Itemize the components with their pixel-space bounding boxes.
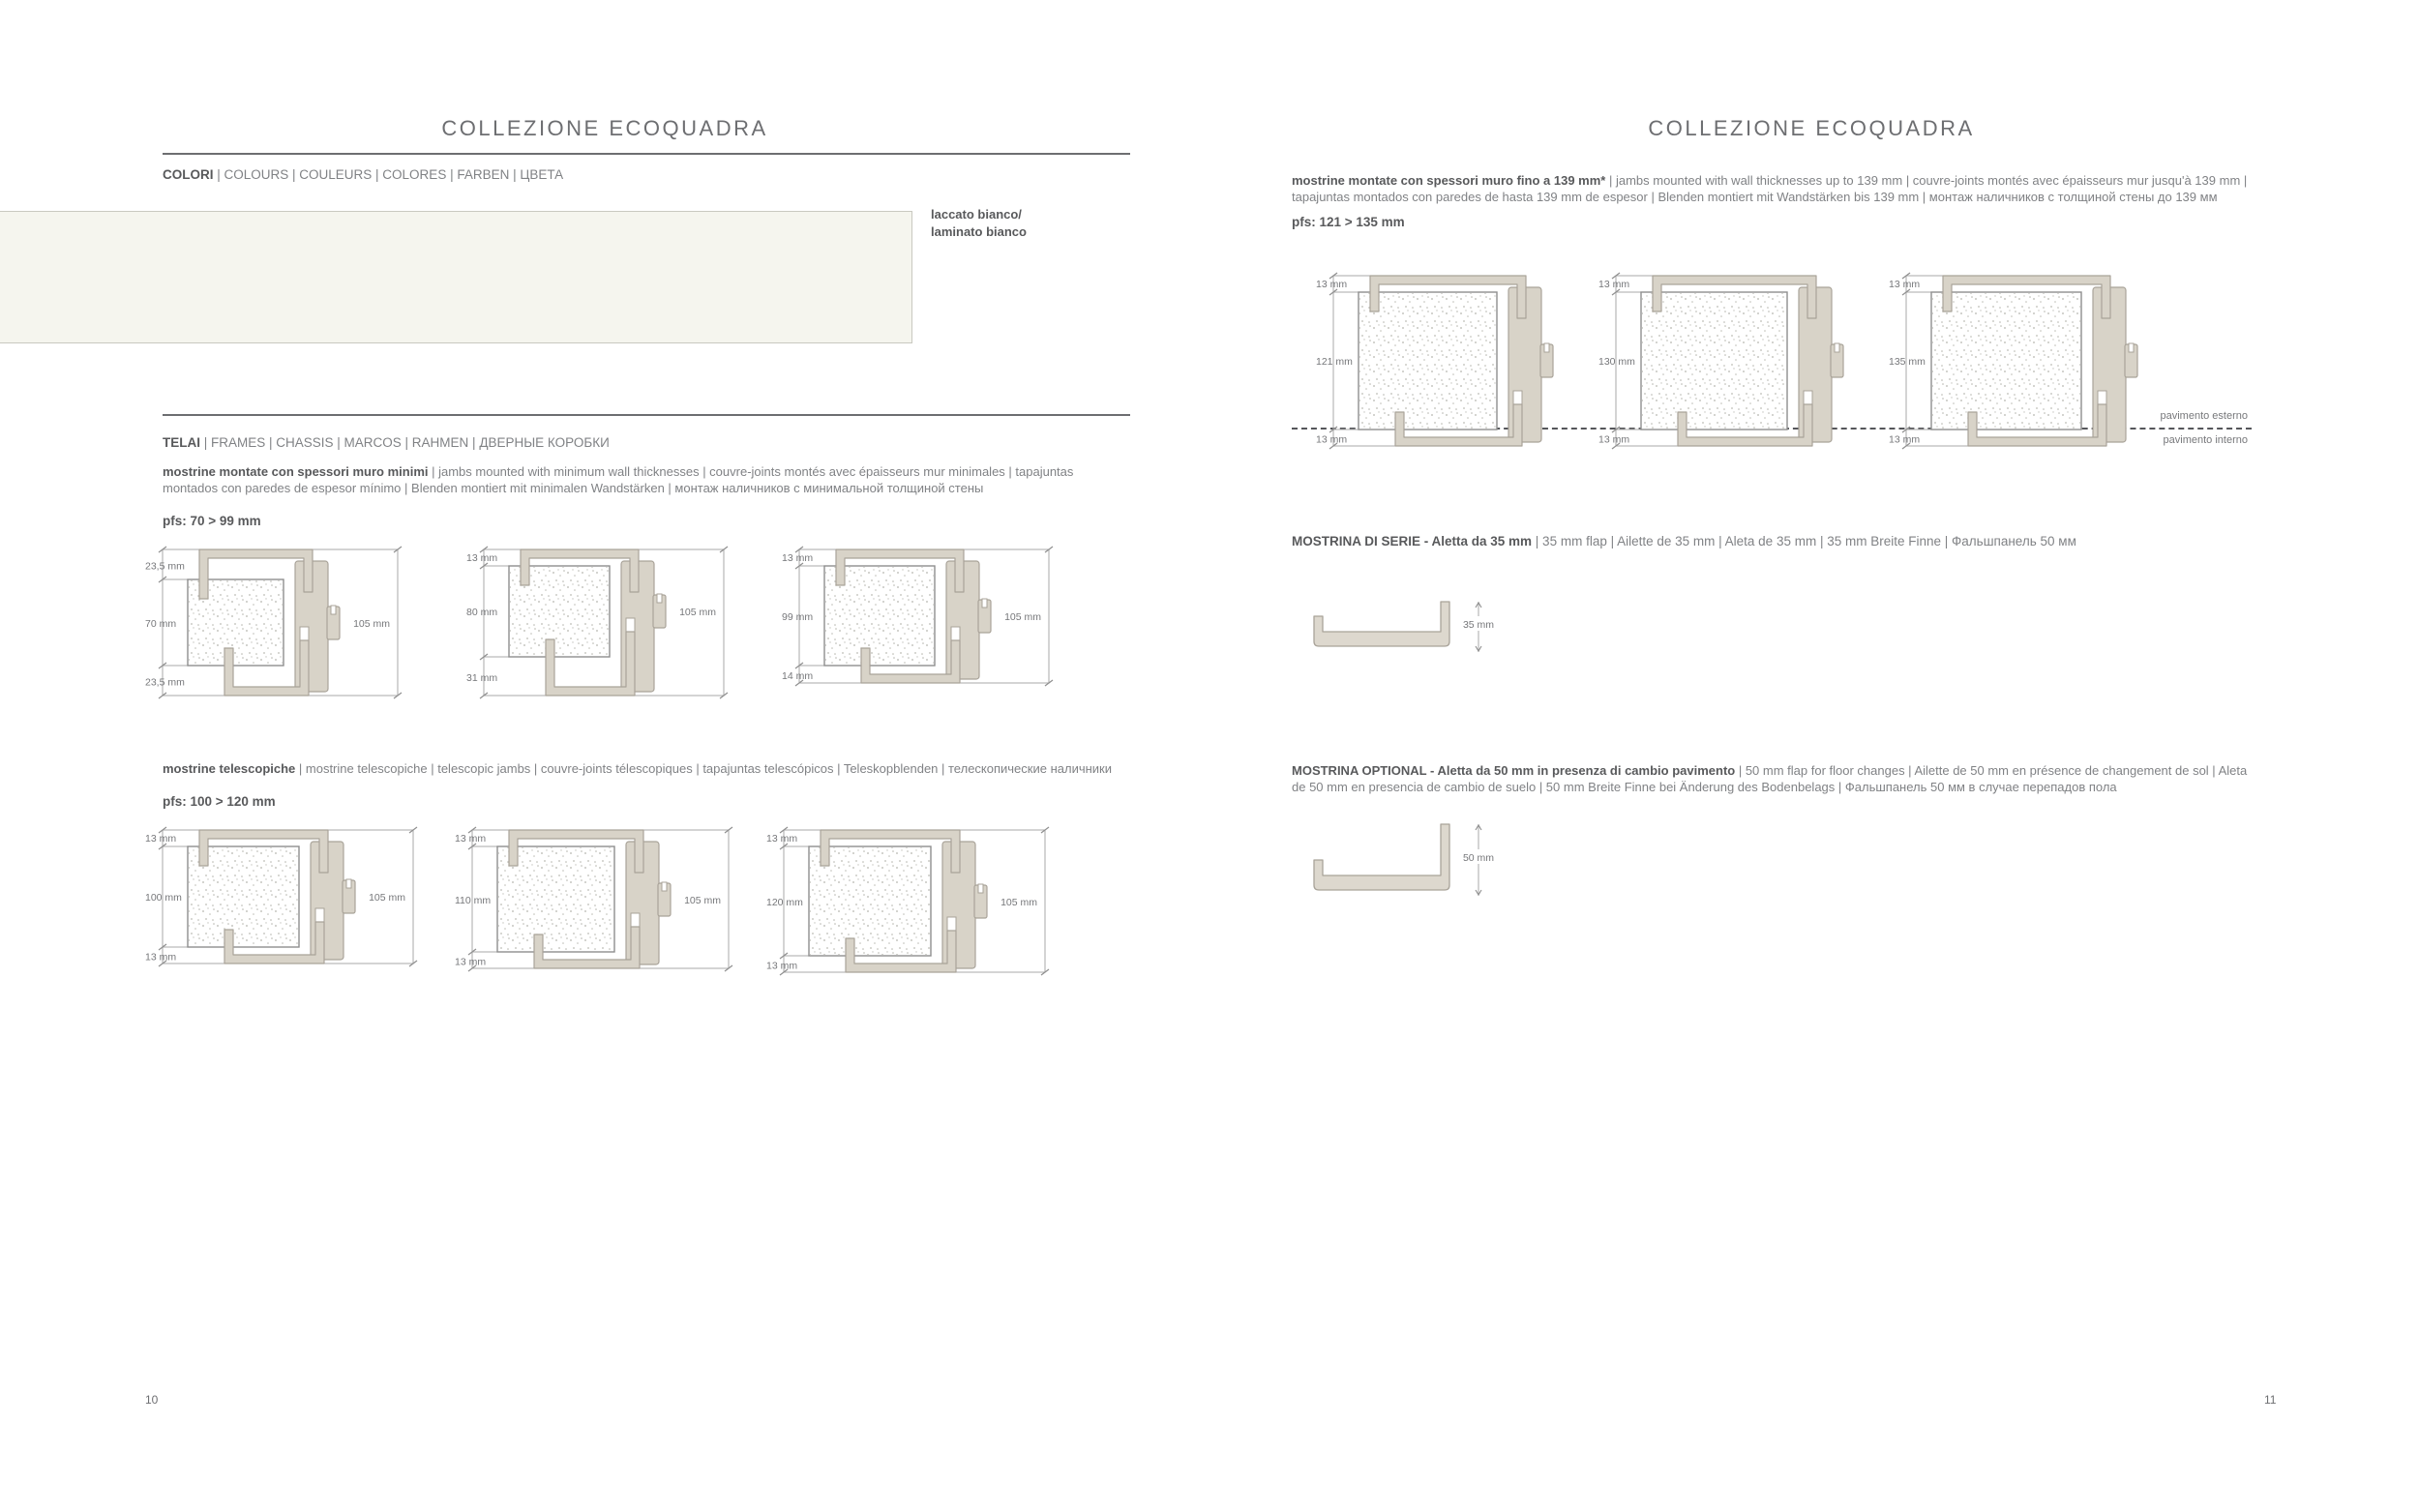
jamb-diagram: 13 mm99 mm14 mm105 mm <box>780 540 1057 703</box>
svg-text:105 mm: 105 mm <box>684 895 721 906</box>
svg-text:13 mm: 13 mm <box>1889 279 1920 290</box>
intro-pfs-range: pfs: 121 > 135 mm <box>1292 215 1405 229</box>
jamb-diagram: 23,5 mm70 mm23,5 mm105 mm <box>143 540 405 716</box>
jamb-diagram: 13 mm100 mm13 mm105 mm <box>143 820 421 984</box>
svg-text:13 mm: 13 mm <box>766 961 797 972</box>
flap-profile-svg: 35 mm <box>1304 590 1509 662</box>
svg-text:110 mm: 110 mm <box>455 895 491 906</box>
svg-text:135 mm: 135 mm <box>1889 356 1926 368</box>
page-title-left: COLLEZIONE ECOQUADRA <box>392 116 818 141</box>
jamb-diagram: 13 mm120 mm13 mm105 mm <box>764 820 1053 993</box>
frames-heading-translations: | FRAMES | CHASSIS | MARCOS | RAHMEN | Д… <box>200 435 610 450</box>
svg-text:105 mm: 105 mm <box>369 892 405 904</box>
page-number-left: 10 <box>145 1393 158 1407</box>
divider-rule <box>163 414 1130 416</box>
svg-text:121 mm: 121 mm <box>1316 356 1353 368</box>
flap-profile-svg: 50 mm <box>1304 813 1509 905</box>
jamb-cross-section-svg: 13 mm110 mm13 mm105 mm <box>453 820 736 984</box>
mostrina-serie-translations: | 35 mm flap | Ailette de 35 mm | Aleta … <box>1532 534 2076 548</box>
svg-text:13 mm: 13 mm <box>1889 434 1920 446</box>
svg-text:23,5 mm: 23,5 mm <box>145 677 185 689</box>
svg-text:105 mm: 105 mm <box>1004 611 1041 623</box>
divider-rule <box>163 153 1130 155</box>
svg-text:13 mm: 13 mm <box>1316 434 1347 446</box>
frames-section-heading: TELAI | FRAMES | CHASSIS | MARCOS | RAHM… <box>163 435 610 450</box>
svg-text:13 mm: 13 mm <box>1316 279 1347 290</box>
svg-text:130 mm: 130 mm <box>1598 356 1635 368</box>
color-swatch-laccato-bianco <box>0 211 912 343</box>
frames-heading-lead: TELAI <box>163 435 200 450</box>
svg-text:23,5 mm: 23,5 mm <box>145 561 185 573</box>
svg-text:13 mm: 13 mm <box>1598 434 1629 446</box>
group2-pfs-range: pfs: 100 > 120 mm <box>163 794 276 809</box>
catalog-spread: COLLEZIONE ECOQUADRA COLORI | COLOURS | … <box>0 0 2419 1512</box>
jamb-diagram: 13 mm135 mm13 mm <box>1887 266 2152 466</box>
intro-desc-lead: mostrine montate con spessori muro fino … <box>1292 173 1605 188</box>
svg-text:120 mm: 120 mm <box>766 897 803 908</box>
jamb-cross-section-svg: 13 mm121 mm13 mm <box>1314 266 1568 461</box>
jamb-cross-section-svg: 13 mm99 mm14 mm105 mm <box>780 540 1057 698</box>
flap-profile-diagram-35mm: 35 mm <box>1304 590 1509 667</box>
jamb-diagram: 13 mm110 mm13 mm105 mm <box>453 820 736 989</box>
page-number-right: 11 <box>2264 1393 2276 1407</box>
jamb-cross-section-svg: 13 mm80 mm31 mm105 mm <box>464 540 732 711</box>
mostrina-optional-lead: MOSTRINA OPTIONAL - Aletta da 50 mm in p… <box>1292 763 1735 778</box>
group2-desc-lead: mostrine telescopiche <box>163 761 295 776</box>
svg-text:13 mm: 13 mm <box>455 957 486 968</box>
floor-label-interno: pavimento interno <box>2117 434 2248 446</box>
jamb-cross-section-svg: 13 mm100 mm13 mm105 mm <box>143 820 421 979</box>
group1-desc-lead: mostrine montate con spessori muro minim… <box>163 464 429 479</box>
svg-text:35 mm: 35 mm <box>1463 619 1494 631</box>
svg-text:13 mm: 13 mm <box>145 952 176 964</box>
page-title-right: COLLEZIONE ECOQUADRA <box>1598 116 2024 141</box>
svg-text:100 mm: 100 mm <box>145 892 182 904</box>
group1-pfs-range: pfs: 70 > 99 mm <box>163 514 261 528</box>
swatch-label-line1: laccato bianco/ <box>931 206 1027 223</box>
swatch-label: laccato bianco/ laminato bianco <box>931 206 1027 241</box>
svg-text:105 mm: 105 mm <box>679 607 716 618</box>
group1-description: mostrine montate con spessori muro minim… <box>163 463 1130 496</box>
svg-text:80 mm: 80 mm <box>466 607 497 618</box>
svg-text:50 mm: 50 mm <box>1463 852 1494 864</box>
svg-text:70 mm: 70 mm <box>145 618 176 630</box>
intro-description: mostrine montate con spessori muro fino … <box>1292 172 2259 205</box>
flap-profile-diagram-50mm: 50 mm <box>1304 813 1509 910</box>
svg-text:13 mm: 13 mm <box>466 552 497 564</box>
mostrina-serie-heading: MOSTRINA DI SERIE - Aletta da 35 mm | 35… <box>1292 534 2076 548</box>
svg-text:105 mm: 105 mm <box>353 618 390 630</box>
floor-label-esterno: pavimento esterno <box>2117 410 2248 422</box>
svg-text:99 mm: 99 mm <box>782 611 813 623</box>
svg-text:31 mm: 31 mm <box>466 672 497 684</box>
svg-text:13 mm: 13 mm <box>782 552 813 564</box>
jamb-cross-section-svg: 13 mm120 mm13 mm105 mm <box>764 820 1053 988</box>
colors-section-heading: COLORI | COLOURS | COULEURS | COLORES | … <box>163 167 563 182</box>
svg-text:13 mm: 13 mm <box>766 833 797 845</box>
svg-text:105 mm: 105 mm <box>1000 897 1037 908</box>
colors-heading-lead: COLORI <box>163 167 214 182</box>
mostrina-serie-lead: MOSTRINA DI SERIE - Aletta da 35 mm <box>1292 534 1532 548</box>
colors-heading-translations: | COLOURS | COULEURS | COLORES | FARBEN … <box>214 167 564 182</box>
svg-text:13 mm: 13 mm <box>145 833 176 845</box>
jamb-diagram: 13 mm80 mm31 mm105 mm <box>464 540 732 716</box>
svg-text:13 mm: 13 mm <box>455 833 486 845</box>
group2-description: mostrine telescopiche | mostrine telesco… <box>163 760 1130 777</box>
jamb-cross-section-svg: 23,5 mm70 mm23,5 mm105 mm <box>143 540 405 711</box>
jamb-cross-section-svg: 13 mm130 mm13 mm <box>1597 266 1858 461</box>
swatch-label-line2: laminato bianco <box>931 223 1027 241</box>
mostrina-optional-heading: MOSTRINA OPTIONAL - Aletta da 50 mm in p… <box>1292 762 2259 795</box>
jamb-diagram: 13 mm130 mm13 mm <box>1597 266 1858 466</box>
jamb-diagram: 13 mm121 mm13 mm <box>1314 266 1568 466</box>
group2-desc-translations: | mostrine telescopiche | telescopic jam… <box>295 761 1112 776</box>
svg-text:13 mm: 13 mm <box>1598 279 1629 290</box>
svg-text:14 mm: 14 mm <box>782 670 813 682</box>
jamb-cross-section-svg: 13 mm135 mm13 mm <box>1887 266 2152 461</box>
